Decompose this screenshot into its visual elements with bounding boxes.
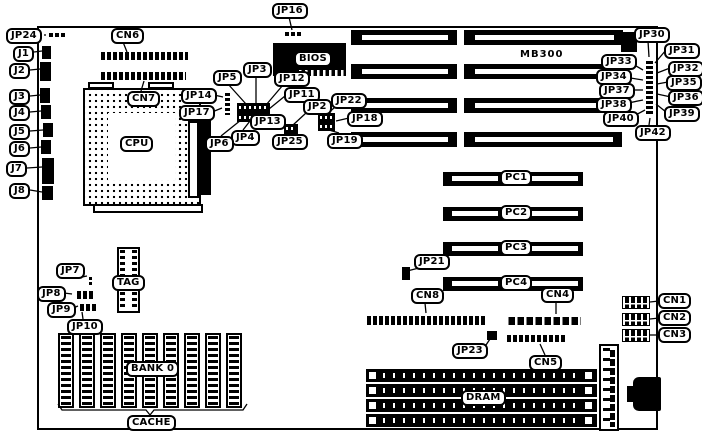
jumper-label-jp25: JP25 xyxy=(272,134,308,150)
jumper-label-jp14: JP14 xyxy=(181,88,217,104)
component-label-dram: DRAM xyxy=(461,390,506,406)
jumper-label-jp2: JP2 xyxy=(303,99,332,115)
jumper-label-jp42: JP42 xyxy=(635,125,671,141)
jumper-label-jp6: JP6 xyxy=(205,136,234,152)
jumper-label-jp33: JP33 xyxy=(601,54,637,70)
leader-line xyxy=(425,303,426,313)
connector-label-cn4: CN4 xyxy=(541,287,574,303)
connector-label-cn7: CN7 xyxy=(127,91,160,107)
connector-label-cn8: CN8 xyxy=(411,288,444,304)
jumper-label-jp4: JP4 xyxy=(231,130,260,146)
jumper-label-jp7: JP7 xyxy=(56,263,85,279)
jumper-label-jp40: JP40 xyxy=(603,111,639,127)
connector-label-cn1: CN1 xyxy=(658,293,691,309)
component-label-bios: BIOS xyxy=(294,51,332,67)
leader-line xyxy=(293,113,306,125)
connector-label-j7: J7 xyxy=(6,161,27,177)
leader-line xyxy=(648,41,649,57)
jumper-label-jp22: JP22 xyxy=(331,93,367,109)
jumper-label-jp30: JP30 xyxy=(634,27,670,43)
jumper-label-jp17: JP17 xyxy=(179,105,215,121)
leader-line xyxy=(82,312,83,319)
leader-line xyxy=(486,339,490,345)
cache-underbrace xyxy=(58,404,247,415)
jumper-label-jp39: JP39 xyxy=(664,106,700,122)
jumper-label-jp10: JP10 xyxy=(67,319,103,335)
component-label-bank0: BANK 0 xyxy=(126,361,179,377)
jumper-label-jp12: JP12 xyxy=(274,71,310,87)
callout-leader-lines xyxy=(0,0,702,437)
leader-line xyxy=(243,121,250,130)
connector-label-j5: J5 xyxy=(9,124,30,140)
leader-line xyxy=(649,118,650,125)
leader-line xyxy=(30,147,41,148)
connector-label-cn2: CN2 xyxy=(658,310,691,326)
jumper-label-jp31: JP31 xyxy=(664,43,700,59)
pci-slot-label-pc4: PC4 xyxy=(500,275,532,291)
jumper-label-jp3: JP3 xyxy=(243,62,272,78)
pci-slot-label-pc1: PC1 xyxy=(500,170,532,186)
motherboard-diagram: MB300 A JP24J1J2J3J4J5J6J7J8JP16CN6CN7JP… xyxy=(0,0,702,437)
leader-line xyxy=(27,167,42,168)
jumper-label-jp18: JP18 xyxy=(347,111,383,127)
component-label-cache: CACHE xyxy=(127,415,176,431)
jumper-label-jp5: JP5 xyxy=(213,70,242,86)
jumper-label-jp9: JP9 xyxy=(47,302,76,318)
jumper-label-jp8: JP8 xyxy=(37,286,66,302)
connector-label-cn6: CN6 xyxy=(111,28,144,44)
leader-line xyxy=(30,130,43,131)
connector-label-j6: J6 xyxy=(9,141,30,157)
jumper-label-jp35: JP35 xyxy=(666,75,702,91)
leader-line xyxy=(34,51,42,52)
connector-label-cn5: CN5 xyxy=(529,355,562,371)
leader-line xyxy=(141,81,144,91)
pci-slot-label-pc3: PC3 xyxy=(500,240,532,256)
leader-line xyxy=(30,190,42,192)
connector-label-j4: J4 xyxy=(9,105,30,121)
leader-line xyxy=(30,95,40,96)
jumper-label-jp19: JP19 xyxy=(327,133,363,149)
connector-label-j8: J8 xyxy=(9,183,30,199)
pci-slot-label-pc2: PC2 xyxy=(500,205,532,221)
jumper-label-jp16: JP16 xyxy=(272,3,308,19)
jumper-label-jp36: JP36 xyxy=(668,90,702,106)
component-label-tag: TAG xyxy=(112,275,145,291)
leader-line xyxy=(30,111,41,112)
jumper-label-jp13: JP13 xyxy=(250,114,286,130)
component-label-cpu: CPU xyxy=(120,136,153,152)
connector-label-j2: J2 xyxy=(9,63,30,79)
connector-label-j3: J3 xyxy=(9,89,30,105)
connector-label-cn3: CN3 xyxy=(658,327,691,343)
jumper-label-jp23: JP23 xyxy=(452,343,488,359)
leader-line xyxy=(30,69,40,70)
leader-line xyxy=(540,344,545,355)
connector-label-j1: J1 xyxy=(13,46,34,62)
leader-line xyxy=(228,84,246,104)
jumper-label-jp24: JP24 xyxy=(6,28,42,44)
leader-line xyxy=(266,85,283,105)
jumper-label-jp21: JP21 xyxy=(414,254,450,270)
